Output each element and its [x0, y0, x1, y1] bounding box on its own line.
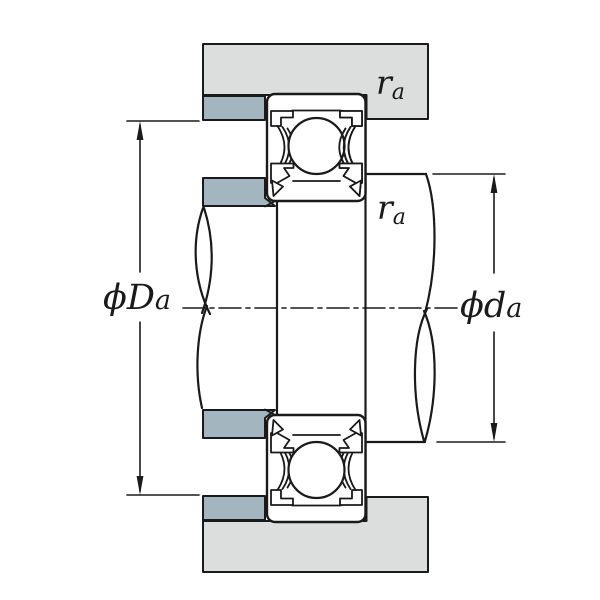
label-shaft-abutment-diameter: ϕda — [460, 286, 522, 326]
housing-abutment-ring-top — [203, 96, 265, 120]
arrow-da-up — [491, 174, 498, 193]
shaft-abutment-ring-top — [203, 178, 275, 206]
shaft-break-curve-lower-right — [424, 311, 435, 441]
arrow-da-down — [491, 423, 498, 442]
housing-abutment-ring-bottom — [203, 496, 265, 520]
ball — [289, 118, 345, 174]
diagram-canvas: ϕDa ϕda ra ra — [0, 0, 600, 600]
sealed-ball-bearing-section-top — [267, 94, 366, 201]
label-housing-abutment-diameter: ϕDa — [103, 278, 171, 318]
shaft-break-curve-lower-left — [415, 309, 427, 441]
label-fillet-radius-shaft: ra — [377, 188, 406, 230]
bearing-mounting-diagram: ϕDa ϕda ra ra — [0, 0, 600, 600]
sealed-ball-bearing-section-bottom — [267, 415, 366, 522]
shaft-abutment-ring-bottom — [203, 410, 275, 438]
rod-break-curve-lower — [197, 306, 207, 408]
arrow-Da-up — [137, 121, 144, 140]
arrow-Da-down — [137, 476, 144, 495]
shaft-break-curve-upper — [425, 174, 435, 313]
